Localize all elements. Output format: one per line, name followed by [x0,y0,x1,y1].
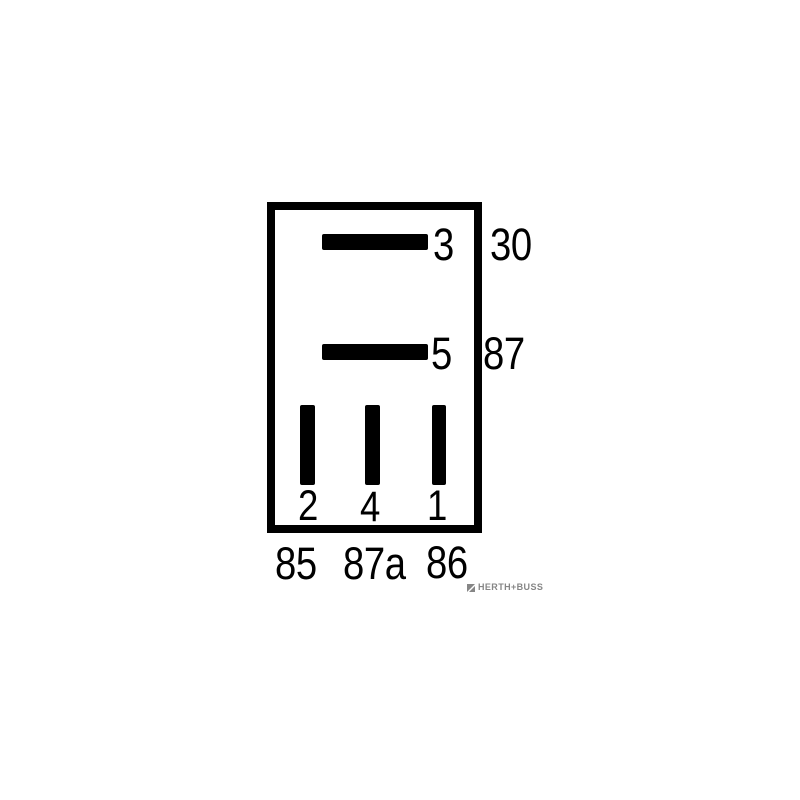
pin-4-contact-bar [365,405,380,485]
terminal-86-label: 86 [426,540,468,585]
pin-3-number-label: 3 [433,222,454,267]
pin-1-contact-bar [432,405,446,485]
terminal-87-label: 87 [483,331,525,376]
pin-5-number-label: 5 [431,331,452,376]
pin-4-number-label: 4 [360,486,380,529]
relay-pinout-diagram: 3 5 2 4 1 30 87 85 87a 86 HERTH+BUSS [0,0,800,800]
pin-2-contact-bar [300,405,315,485]
pin-1-number-label: 1 [427,485,447,528]
terminal-87a-label: 87a [343,541,406,586]
pin-2-number-label: 2 [298,485,318,528]
pin-3-contact-bar [322,234,428,250]
terminal-85-label: 85 [275,541,317,586]
herth-buss-flag-icon [467,584,475,592]
terminal-30-label: 30 [490,222,532,267]
herth-buss-logo-text: HERTH+BUSS [478,583,543,592]
pin-5-contact-bar [322,344,428,360]
herth-buss-logo: HERTH+BUSS [467,583,543,592]
